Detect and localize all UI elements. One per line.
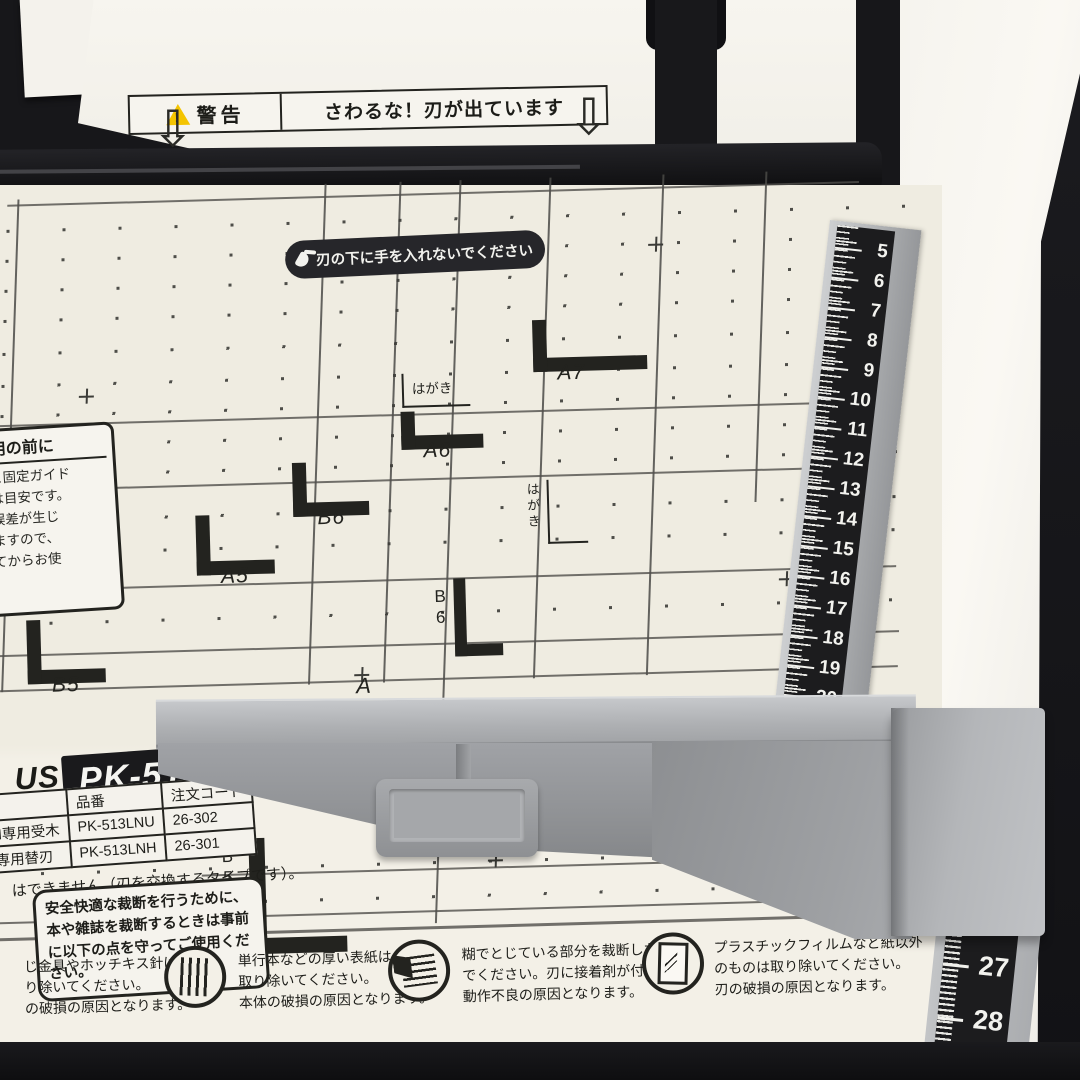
order-code: 26-301 (165, 828, 257, 860)
size-label-b6-vertical: B6 (429, 587, 450, 630)
size-label-a6: A6 (423, 439, 451, 464)
size-label-a7: A7 (557, 361, 585, 386)
size-mark-a7 (532, 317, 647, 372)
plastic-film-icon (641, 932, 705, 996)
blade-cover (78, 0, 856, 162)
table-surface (0, 1042, 1080, 1080)
size-mark-b6-vertical (453, 577, 503, 656)
before-use-title: 使用の前に (0, 429, 107, 466)
before-use-box: 使用の前に 線と固定ガイド 示は目安です。 法誤差が生じ りますので、 してから… (0, 421, 125, 619)
fence-handle[interactable] (376, 779, 538, 857)
warning-badge-label: 警告 (196, 98, 245, 128)
hand-icon (294, 250, 311, 268)
glue-binding-icon (387, 939, 451, 1003)
paper-cutter-photo: ! 警告 さわるな！刃が出ています ⇩ ⇩ (0, 0, 1080, 1080)
blade-caution-pill: 刃の下に手を入れないでください (284, 230, 545, 280)
blade-lever-arm (655, 0, 717, 155)
warning-message: さわるな！刃が出ています (282, 87, 607, 130)
size-label-hagaki-1: はがき (412, 376, 453, 397)
size-label-partial-a: A (356, 673, 371, 699)
slider-block[interactable] (891, 708, 1045, 936)
caution-text-4: プラスチックフィルムなど紙以外 のものは取り除いてください。 刃の破損の原因とな… (713, 932, 924, 1001)
part-name: N専用替刃 (0, 841, 71, 874)
size-label-a5: A5 (221, 564, 249, 589)
size-mark-hagaki-2 (546, 479, 588, 544)
size-label-hagaki-2: はがき (523, 482, 543, 531)
blade-caution-text: 刃の下に手を入れないでください (316, 239, 534, 270)
before-use-text: 線と固定ガイド 示は目安です。 法誤差が生じ りますので、 してからお使 (0, 462, 113, 575)
down-arrow-icon: ⇩ (152, 104, 194, 154)
down-arrow-icon: ⇩ (568, 92, 610, 142)
size-label-b6: B6 (317, 505, 345, 530)
size-label-b5: B5 (52, 673, 80, 698)
part-number: PK-513LNH (70, 834, 167, 867)
spiral-binding-icon (163, 945, 227, 1009)
